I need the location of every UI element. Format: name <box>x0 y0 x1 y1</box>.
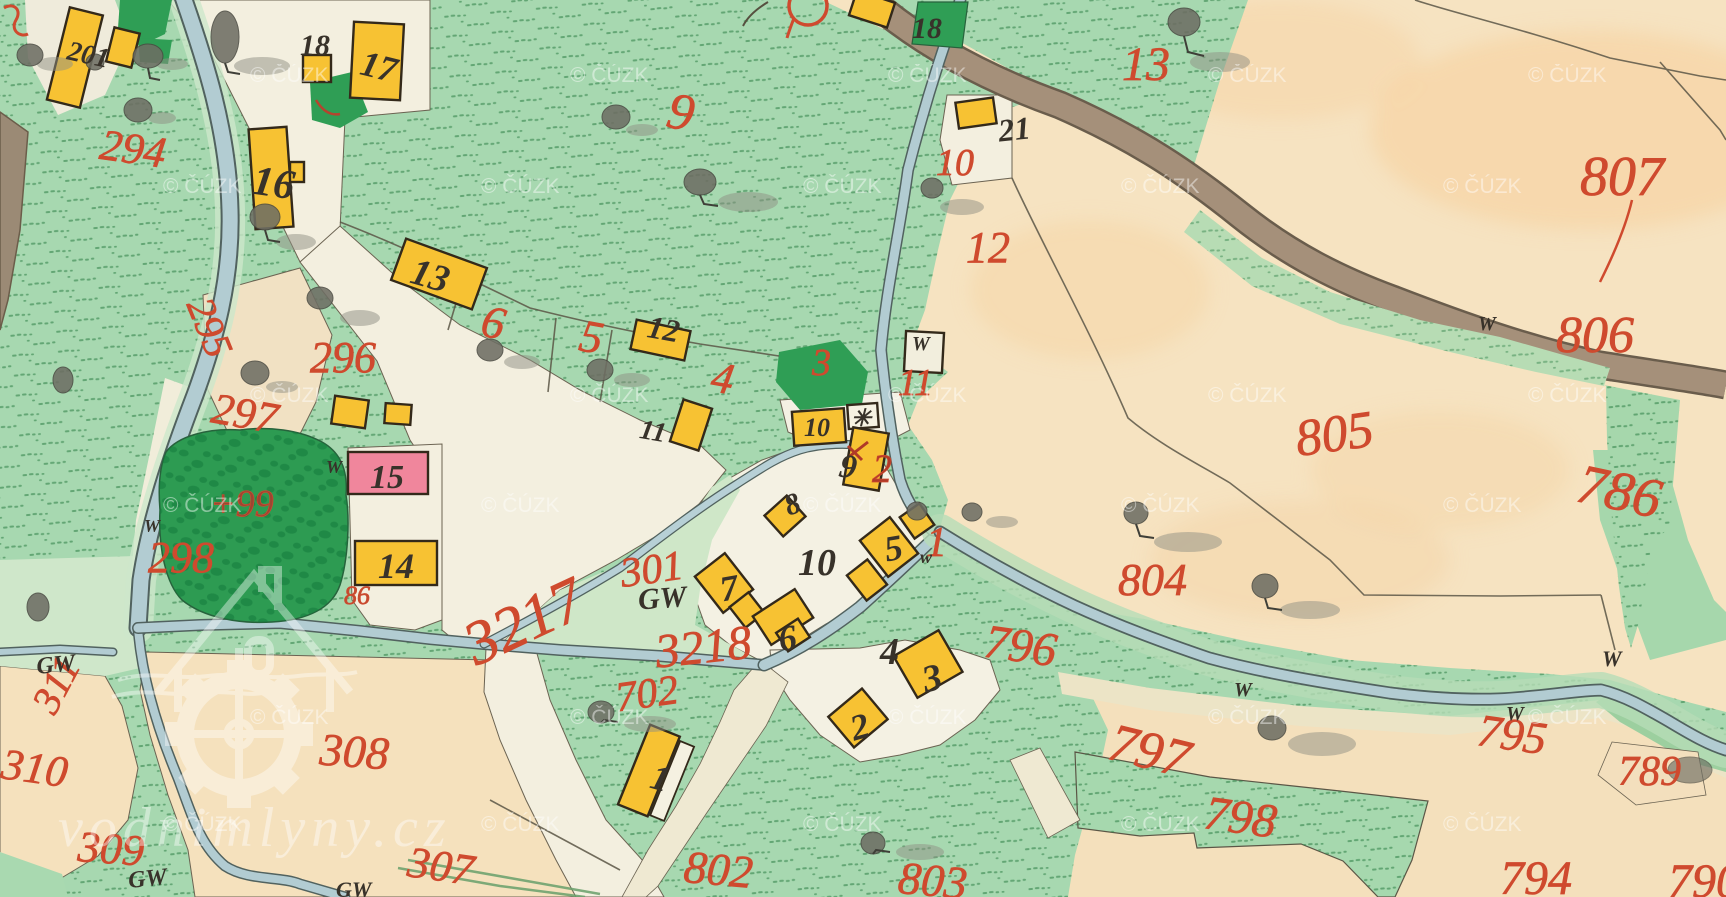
svg-text:804: 804 <box>1118 554 1187 605</box>
svg-text:© ČÚZK: © ČÚZK <box>250 384 328 407</box>
svg-text:796: 796 <box>981 615 1060 678</box>
svg-text:W: W <box>144 516 162 536</box>
svg-text:© ČÚZK: © ČÚZK <box>1528 64 1606 87</box>
svg-text:W: W <box>1234 679 1253 701</box>
svg-text:16: 16 <box>250 158 298 209</box>
svg-text:© ČÚZK: © ČÚZK <box>1528 384 1606 407</box>
svg-text:© ČÚZK: © ČÚZK <box>570 384 648 407</box>
svg-text:15: 15 <box>370 459 404 496</box>
svg-text:© ČÚZK: © ČÚZK <box>1443 494 1521 517</box>
svg-text:10: 10 <box>936 142 974 184</box>
svg-text:11: 11 <box>637 414 668 449</box>
svg-text:12: 12 <box>966 223 1010 272</box>
svg-text:© ČÚZK: © ČÚZK <box>481 175 559 198</box>
svg-text:© ČÚZK: © ČÚZK <box>1443 813 1521 836</box>
svg-text:3: 3 <box>811 342 831 384</box>
svg-text:308: 308 <box>317 724 390 780</box>
svg-text:© ČÚZK: © ČÚZK <box>888 384 966 407</box>
svg-text:© ČÚZK: © ČÚZK <box>1208 64 1286 87</box>
svg-text:© ČÚZK: © ČÚZK <box>803 175 881 198</box>
svg-text:794: 794 <box>1500 852 1572 897</box>
svg-text:© ČÚZK: © ČÚZK <box>803 494 881 517</box>
svg-text:w: w <box>920 547 933 567</box>
svg-text:14: 14 <box>378 546 414 586</box>
svg-text:294: 294 <box>97 120 169 178</box>
svg-text:18: 18 <box>300 29 330 62</box>
svg-text:© ČÚZK: © ČÚZK <box>1121 175 1199 198</box>
svg-text:© ČÚZK: © ČÚZK <box>1528 706 1606 729</box>
svg-text:© ČÚZK: © ČÚZK <box>163 494 241 517</box>
svg-text:GW: GW <box>127 864 170 894</box>
svg-text:W: W <box>326 457 344 477</box>
svg-text:2: 2 <box>872 446 892 491</box>
svg-text:806: 806 <box>1556 307 1634 364</box>
svg-text:✳: ✳ <box>851 406 873 432</box>
svg-text:18: 18 <box>912 12 942 45</box>
svg-text:© ČÚZK: © ČÚZK <box>803 813 881 836</box>
svg-text:W: W <box>1478 313 1497 335</box>
svg-text:© ČÚZK: © ČÚZK <box>1121 813 1199 836</box>
svg-text:798: 798 <box>1201 786 1280 849</box>
svg-text:13: 13 <box>1122 38 1170 91</box>
svg-text:10: 10 <box>804 413 830 442</box>
svg-text:vodnimlyny.cz: vodnimlyny.cz <box>58 797 452 859</box>
svg-text:W: W <box>912 333 931 355</box>
svg-text:© ČÚZK: © ČÚZK <box>570 706 648 729</box>
svg-text:© ČÚZK: © ČÚZK <box>163 175 241 198</box>
svg-text:12: 12 <box>645 308 683 349</box>
svg-text:803: 803 <box>896 852 969 897</box>
svg-text:© ČÚZK: © ČÚZK <box>1121 494 1199 517</box>
svg-text:807: 807 <box>1580 146 1666 208</box>
svg-text:© ČÚZK: © ČÚZK <box>1208 706 1286 729</box>
svg-text:GW: GW <box>35 650 78 680</box>
svg-text:© ČÚZK: © ČÚZK <box>250 64 328 87</box>
svg-text:© ČÚZK: © ČÚZK <box>888 64 966 87</box>
svg-text:789: 789 <box>1618 749 1681 795</box>
svg-text:10: 10 <box>798 542 836 584</box>
svg-text:GW: GW <box>336 877 373 897</box>
svg-text:790: 790 <box>1668 855 1726 897</box>
svg-text:86: 86 <box>344 581 370 610</box>
svg-text:© ČÚZK: © ČÚZK <box>1443 175 1521 198</box>
svg-text:21: 21 <box>996 109 1033 148</box>
svg-text:GW: GW <box>637 580 690 616</box>
svg-text:3218: 3218 <box>652 616 754 679</box>
svg-text:© ČÚZK: © ČÚZK <box>481 494 559 517</box>
svg-text:296: 296 <box>310 333 376 382</box>
svg-text:W: W <box>1602 646 1623 671</box>
svg-text:802: 802 <box>682 841 755 897</box>
svg-text:4: 4 <box>879 631 899 673</box>
svg-text:310: 310 <box>0 739 71 797</box>
svg-text:© ČÚZK: © ČÚZK <box>481 813 559 836</box>
svg-text:298: 298 <box>148 533 214 582</box>
svg-text:© ČÚZK: © ČÚZK <box>570 64 648 87</box>
svg-text:© ČÚZK: © ČÚZK <box>888 706 966 729</box>
svg-text:© ČÚZK: © ČÚZK <box>1208 384 1286 407</box>
svg-text:805: 805 <box>1292 401 1377 468</box>
svg-text:W: W <box>1506 703 1525 725</box>
